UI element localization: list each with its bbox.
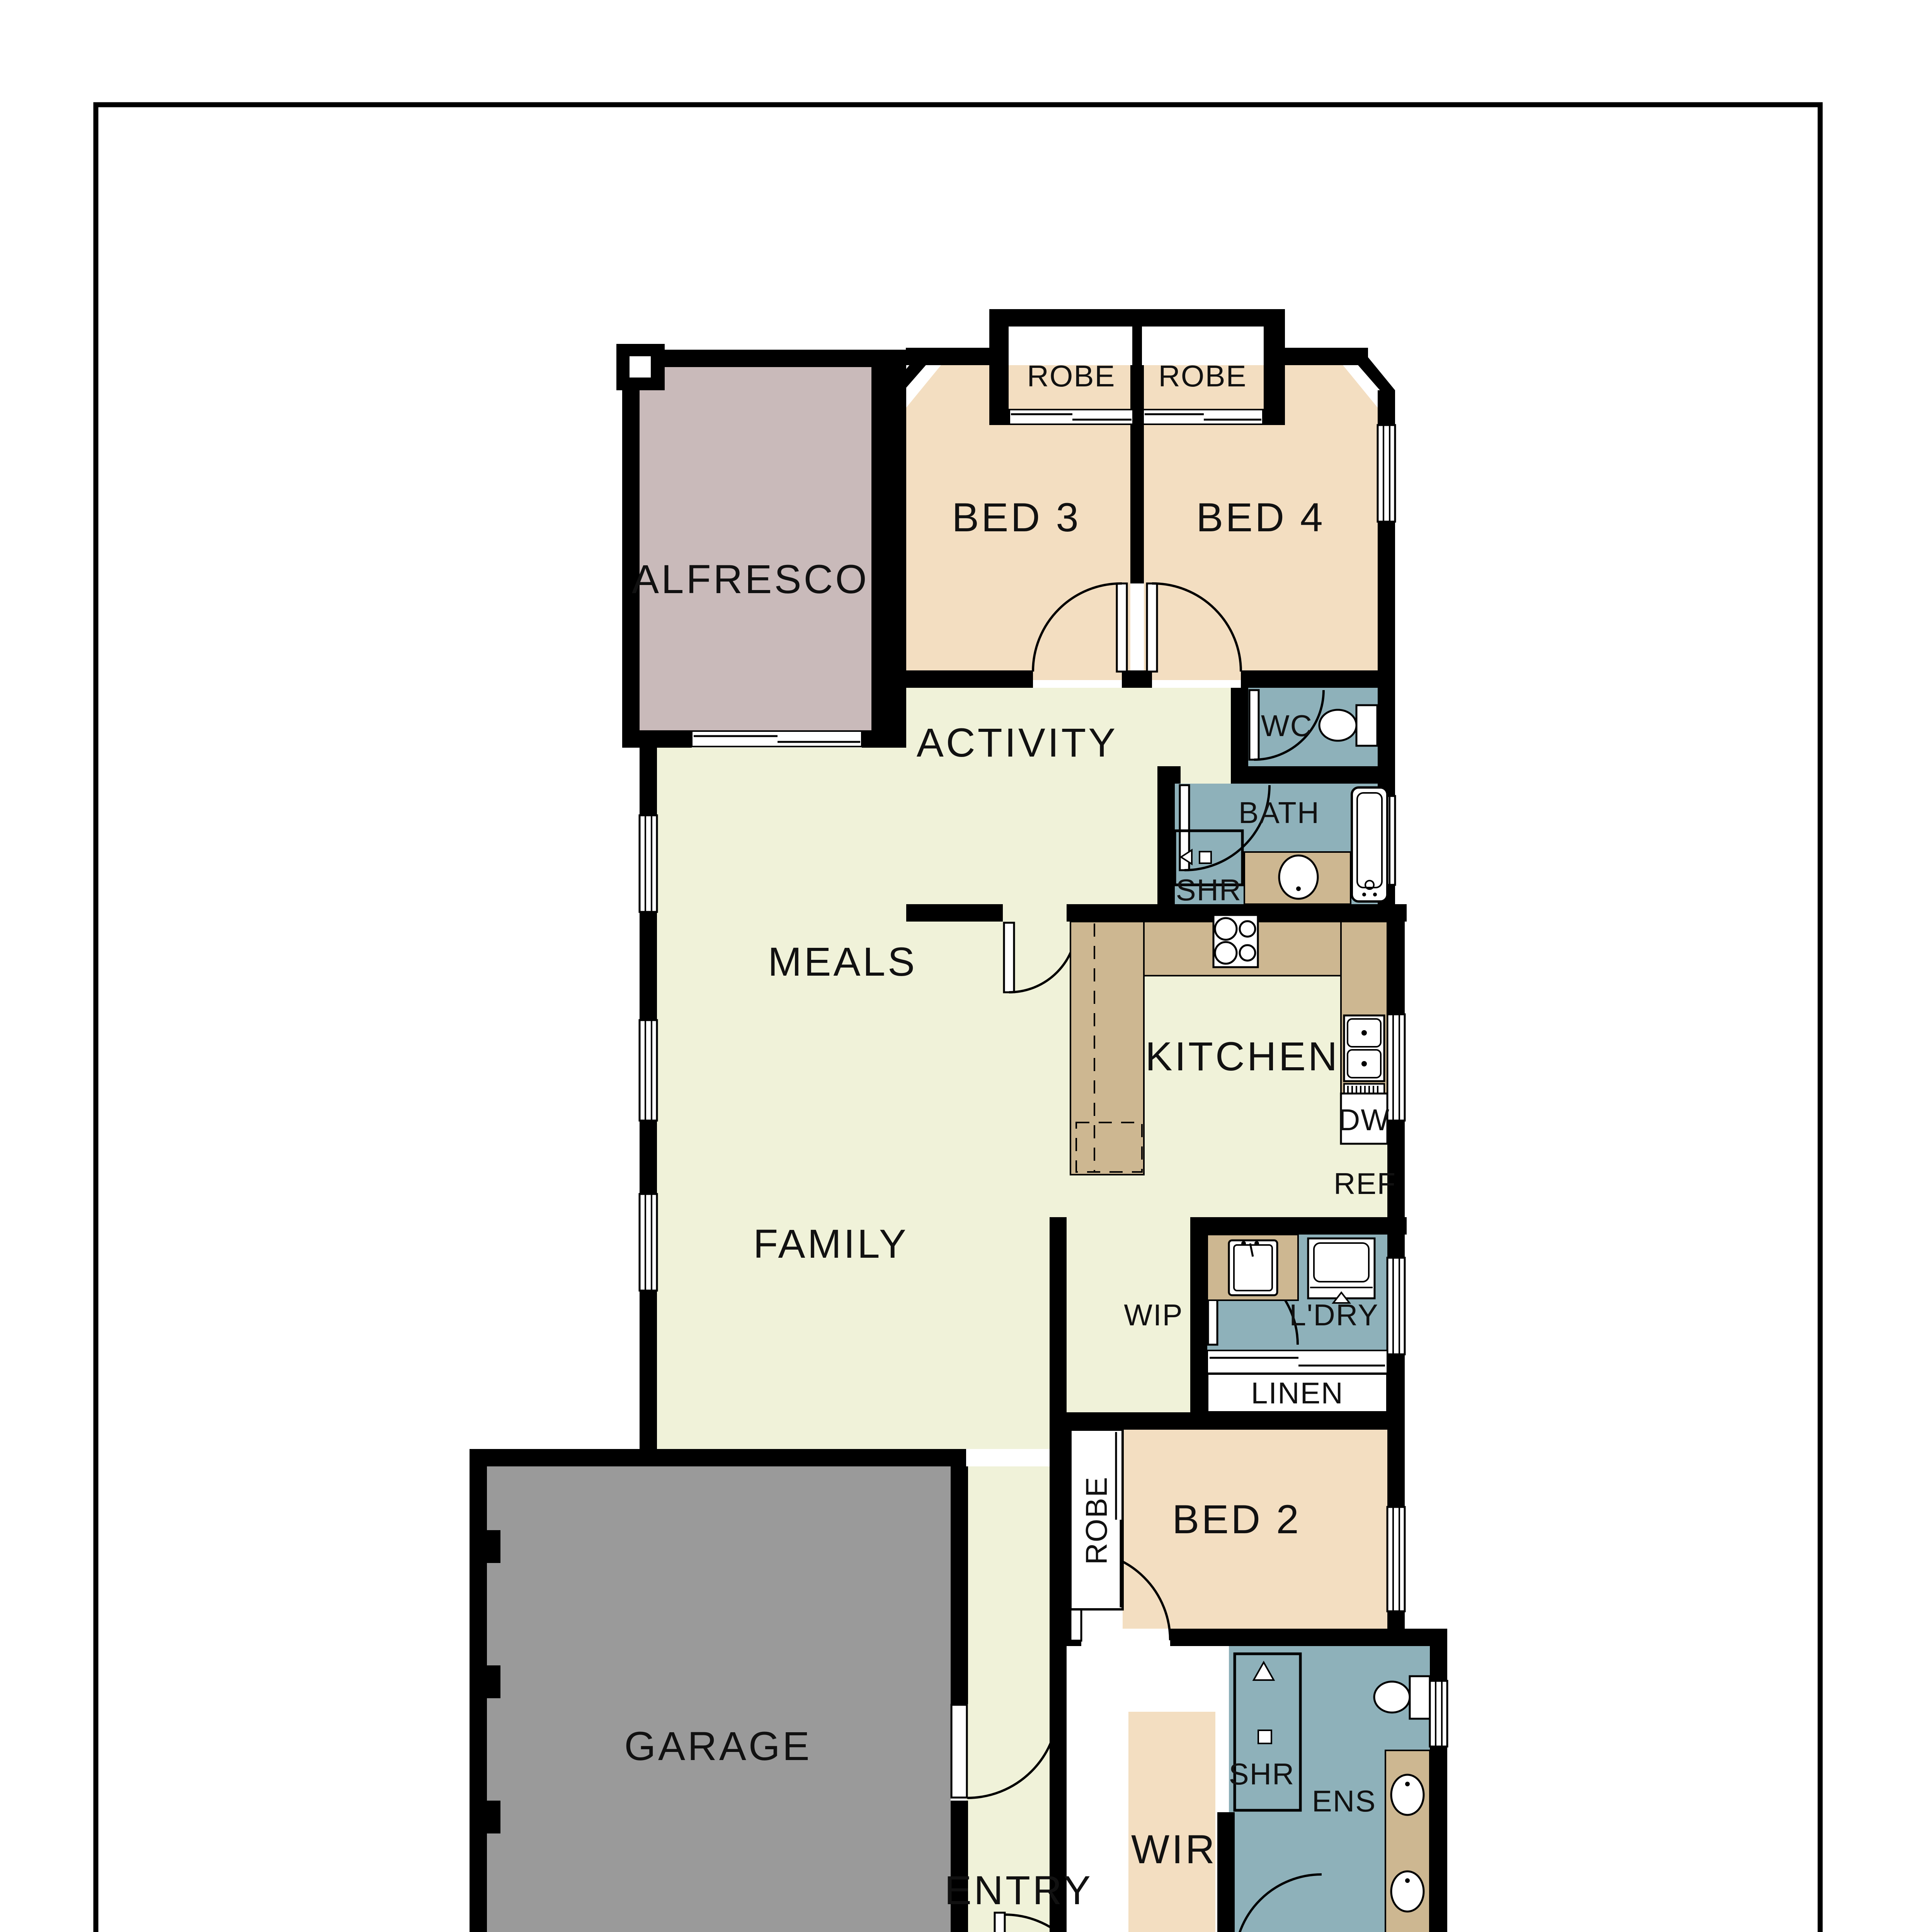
robe1-slider — [1009, 410, 1133, 424]
label-bath: BATH — [1239, 796, 1320, 830]
label-garage: GARAGE — [624, 1724, 812, 1769]
hall-entry-floor — [966, 1466, 1050, 1932]
label-wc: WC — [1261, 709, 1313, 743]
bath-vanity — [1244, 852, 1351, 904]
label-robe1: ROBE — [1027, 359, 1115, 393]
label-linen: LINEN — [1251, 1376, 1344, 1410]
kitchen-bench-left — [1070, 922, 1144, 1175]
label-kitchen: KITCHEN — [1145, 1034, 1340, 1079]
label-wir: WIR — [1131, 1827, 1217, 1872]
label-robe2: ROBE — [1158, 359, 1247, 393]
washing-machine — [1308, 1238, 1375, 1303]
ens-vanity — [1385, 1750, 1430, 1932]
garage-floor — [487, 1466, 951, 1932]
alfresco-pier-inset — [630, 356, 651, 378]
label-ens: ENS — [1312, 1784, 1376, 1818]
window-bed2-right — [1387, 1507, 1405, 1611]
label-robe-bed2: ROBE — [1079, 1476, 1113, 1565]
alfresco-floor — [640, 367, 871, 730]
label-wip: WIP — [1124, 1298, 1183, 1332]
window-ens-right — [1430, 1681, 1447, 1747]
label-bed2: BED 2 — [1172, 1497, 1301, 1542]
label-activity: ACTIVITY — [917, 720, 1118, 765]
alfresco-slider — [692, 731, 862, 747]
label-dw: DW — [1338, 1103, 1390, 1137]
activity-floor-b — [906, 784, 1157, 922]
label-shr-ens: SHR — [1229, 1757, 1295, 1791]
label-ref: REF — [1334, 1167, 1396, 1201]
floor-plan: ROBE ROBE BED 3 BED 4 ALFRESCO ACTIVITY … — [0, 0, 1916, 1932]
label-entry: ENTRY — [944, 1868, 1093, 1913]
stove — [1213, 915, 1258, 967]
label-meals: MEALS — [768, 939, 917, 985]
robe2-slider — [1143, 410, 1263, 424]
label-family: FAMILY — [753, 1221, 909, 1267]
wir-floor — [1128, 1712, 1215, 1932]
window-bed4-right — [1378, 425, 1395, 522]
window-family-left-1 — [640, 815, 657, 912]
label-alfresco: ALFRESCO — [632, 557, 869, 602]
window-family-left-3 — [640, 1194, 657, 1291]
bathtub — [1352, 787, 1387, 901]
window-ldry-right — [1387, 1258, 1405, 1354]
label-ldry: L'DRY — [1289, 1298, 1379, 1332]
label-shr-bath: SHR — [1176, 873, 1242, 907]
label-bed3: BED 3 — [952, 495, 1081, 540]
label-bed4: BED 4 — [1196, 495, 1325, 540]
ldry-bench — [1207, 1235, 1298, 1300]
window-family-left-2 — [640, 1020, 657, 1121]
ldry-slider — [1207, 1350, 1387, 1374]
